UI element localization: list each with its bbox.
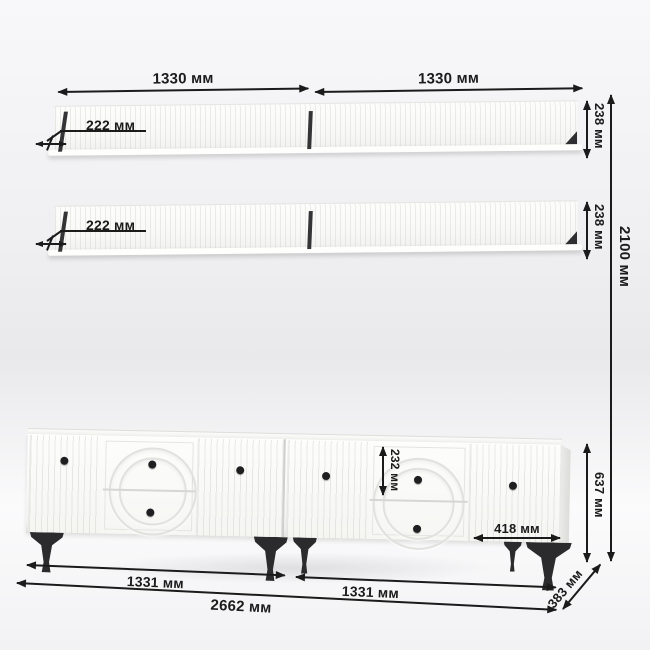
cabinet-door-1 bbox=[28, 435, 104, 533]
dim-door-width-label: 418 мм bbox=[474, 521, 560, 536]
dim-shelf2-height-line bbox=[586, 202, 588, 259]
dim-drawer-height-label: 232 мм bbox=[388, 449, 402, 491]
dim-cabinet-height-label: 637 мм bbox=[592, 472, 607, 518]
furniture-dimension-diagram: 1330 мм 1330 мм 222 мм 238 мм 222 мм bbox=[0, 0, 650, 650]
dim-shelf1-height-line bbox=[586, 101, 588, 158]
cabinet-door-3 bbox=[286, 440, 372, 539]
dim-shelf2-depth: 222 мм bbox=[36, 217, 156, 251]
dim-depth-arrow bbox=[36, 143, 66, 145]
dim-total-height-label: 2100 мм bbox=[616, 226, 633, 287]
dim-drawer-height-line bbox=[382, 447, 384, 495]
cabinet-leg bbox=[292, 537, 317, 573]
dim-shelf2-height-label: 238 мм bbox=[592, 204, 607, 250]
dim-cabinet-height-line bbox=[586, 444, 588, 562]
cabinet-door-2 bbox=[196, 438, 286, 537]
drawer-knob bbox=[146, 508, 154, 516]
dim-door-width-line bbox=[474, 537, 560, 539]
dim-shelf1-height-label: 238 мм bbox=[592, 103, 607, 149]
dim-shelf-width-left-label: 1330 мм bbox=[58, 69, 308, 89]
dim-total-height-line bbox=[610, 95, 612, 561]
dim-shelf1-depth: 222 мм bbox=[36, 117, 156, 151]
dim-shelf-width-right-label: 1330 мм bbox=[315, 68, 582, 89]
drawer-knob bbox=[148, 460, 156, 468]
dim-leader-line bbox=[60, 230, 146, 232]
dim-leader-line bbox=[60, 130, 146, 132]
dim-shelf-width-left: 1330 мм bbox=[58, 69, 308, 93]
dim-shelf-width-right: 1330 мм bbox=[315, 68, 582, 93]
cabinet-leg-back bbox=[503, 542, 522, 572]
dim-depth-arrow bbox=[36, 243, 66, 245]
